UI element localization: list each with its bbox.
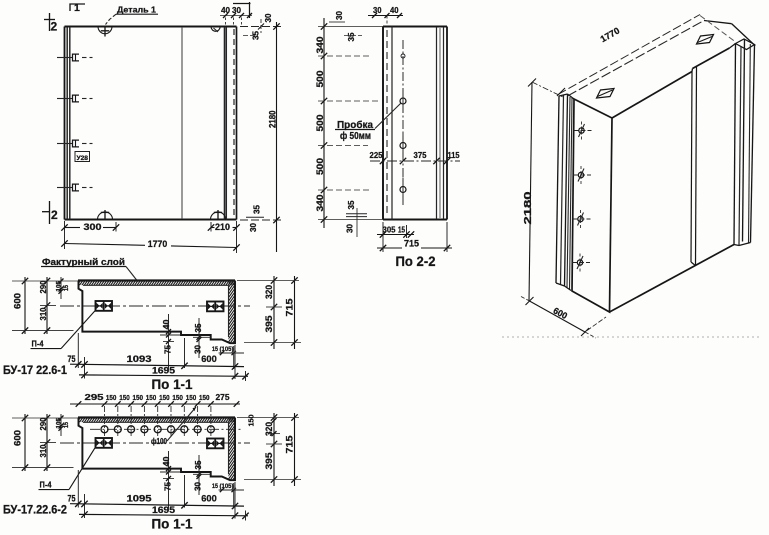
svg-text:150: 150 [106,393,117,402]
svg-text:П-4: П-4 [40,479,52,489]
svg-text:35: 35 [346,32,356,41]
svg-text:150: 150 [172,393,183,402]
svg-text:1770: 1770 [148,239,168,249]
svg-text:500: 500 [315,71,325,88]
svg-text:395: 395 [264,453,274,470]
svg-text:210: 210 [215,222,230,232]
svg-text:Деталь 1: Деталь 1 [117,6,156,15]
svg-text:715: 715 [285,436,295,454]
svg-text:30: 30 [232,5,241,15]
svg-text:40: 40 [162,456,171,467]
svg-text:40: 40 [162,319,171,330]
svg-text:600: 600 [13,293,23,309]
svg-text:Фактурный слой: Фактурный слой [42,257,125,267]
svg-text:275: 275 [216,392,230,402]
svg-text:35: 35 [194,323,203,333]
svg-text:395: 395 [264,316,274,333]
svg-text:295: 295 [85,392,104,402]
svg-text:310: 310 [38,307,48,320]
svg-text:По 1-1: По 1-1 [152,516,193,532]
svg-text:30: 30 [334,11,344,20]
svg-text:По 2-2: По 2-2 [396,253,436,269]
svg-text:105: 105 [56,281,63,292]
svg-text:305: 305 [383,225,397,234]
svg-text:15: 15 [212,483,218,490]
svg-text:600: 600 [201,493,217,503]
svg-text:БУ-17 22.6-1: БУ-17 22.6-1 [3,365,68,377]
svg-text:15: 15 [63,422,70,428]
svg-text:150: 150 [119,393,130,402]
svg-text:2180: 2180 [523,191,534,225]
svg-text:40: 40 [390,6,399,15]
svg-text:150: 150 [133,393,144,402]
svg-text:15: 15 [63,285,70,291]
svg-text:75: 75 [164,344,173,354]
svg-text:15: 15 [212,346,218,353]
svg-text:600: 600 [13,430,23,446]
svg-text:30: 30 [373,6,382,15]
svg-text:П-4: П-4 [32,338,44,348]
svg-text:2: 2 [51,208,58,222]
svg-text:2180: 2180 [268,111,278,129]
svg-text:340: 340 [315,37,325,54]
svg-text:105: 105 [56,418,63,429]
svg-text:У28: У28 [77,155,89,162]
svg-text:600: 600 [201,354,217,364]
svg-text:30: 30 [194,344,203,354]
svg-text:320: 320 [264,285,274,299]
svg-text:715: 715 [285,299,295,317]
svg-text:ф100: ф100 [151,436,167,446]
svg-text:1093: 1093 [127,354,152,364]
svg-text:15: 15 [398,225,405,234]
svg-text:По 1-1: По 1-1 [152,376,193,392]
svg-text:ф 50мм: ф 50мм [340,130,371,142]
svg-text:35: 35 [194,460,203,470]
svg-text:БУ-17.22.6-2: БУ-17.22.6-2 [3,505,67,517]
svg-text:2: 2 [51,20,58,34]
svg-text:30: 30 [248,223,258,232]
svg-text:1: 1 [74,2,80,14]
svg-text:115: 115 [448,150,460,160]
svg-text:75: 75 [164,481,173,491]
svg-text:150: 150 [146,393,157,402]
svg-text:35: 35 [346,200,356,209]
svg-text:30: 30 [194,481,203,491]
svg-text:500: 500 [315,158,325,175]
svg-text:(105): (105) [220,346,234,353]
svg-text:150: 150 [247,415,256,427]
svg-text:290: 290 [38,417,48,430]
svg-text:340: 340 [315,195,325,212]
svg-text:150: 150 [186,393,197,402]
svg-text:30: 30 [263,13,273,22]
svg-text:375: 375 [414,150,427,160]
svg-text:(105): (105) [220,483,234,490]
svg-text:310: 310 [38,444,48,457]
svg-text:150: 150 [199,393,210,402]
svg-text:715: 715 [404,238,419,248]
svg-text:75: 75 [68,493,76,503]
svg-text:1695: 1695 [152,366,175,376]
svg-text:150: 150 [159,393,170,402]
svg-text:1095: 1095 [127,493,152,503]
svg-text:75: 75 [68,354,76,364]
svg-text:225: 225 [370,150,383,160]
svg-text:1695: 1695 [152,505,175,515]
svg-text:30: 30 [345,224,355,233]
svg-text:290: 290 [38,280,48,293]
svg-text:40: 40 [221,5,230,15]
svg-text:35: 35 [252,205,262,214]
svg-text:300: 300 [84,222,102,232]
svg-text:500: 500 [315,115,325,132]
